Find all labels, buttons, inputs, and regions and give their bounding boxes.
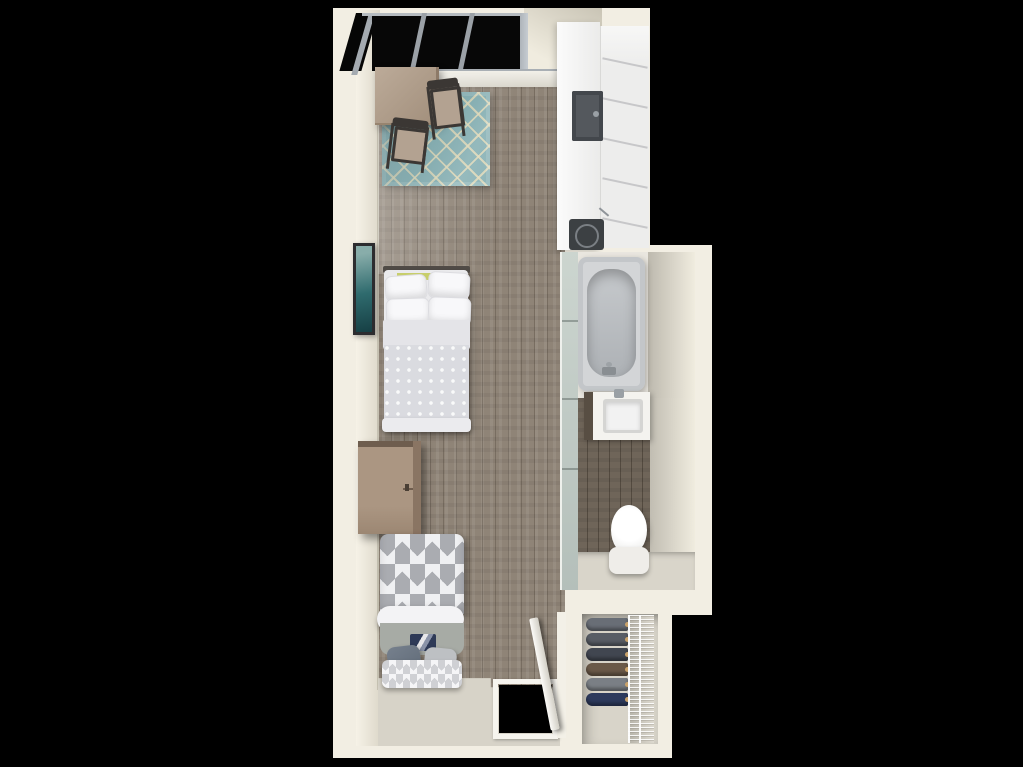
kitchen-faucet (593, 111, 599, 117)
wall-art (353, 243, 375, 335)
clothes-item (586, 678, 628, 691)
window-frame-right (520, 13, 528, 73)
cabinet-shelf-edge (602, 177, 647, 189)
floorplan-render (0, 0, 1023, 767)
clothes-item (586, 648, 628, 661)
bed-1 (383, 266, 470, 434)
vanity-cabinet-edge (584, 392, 593, 440)
clothes-item (586, 633, 628, 646)
baseboard (377, 74, 379, 690)
cooktop (569, 219, 604, 250)
bathtub (578, 257, 645, 391)
dresser-knob (405, 484, 409, 491)
bed-2 (380, 534, 464, 688)
polka-dot-duvet (384, 345, 469, 421)
dining-chair (384, 117, 432, 172)
glass-seam (562, 398, 578, 400)
glass-seam (562, 320, 578, 322)
vanity-sink (603, 399, 643, 433)
window-frame-top (362, 13, 528, 16)
glass-partition (560, 252, 578, 590)
foot-pillow-chevron (382, 660, 462, 688)
dresser (358, 441, 421, 534)
dresser-side (413, 441, 421, 534)
bathtub-faucet (602, 367, 616, 375)
chevron-duvet (380, 534, 464, 614)
clothes-item (586, 618, 628, 631)
clothes-item (586, 693, 628, 706)
bathroom-right-wall-face (648, 252, 695, 398)
glass-seam (562, 468, 578, 470)
vanity-faucet (614, 389, 624, 398)
cabinet-shelf-edge (602, 57, 647, 69)
bathtub-basin (587, 269, 636, 377)
window-glass (372, 13, 528, 71)
cabinet-shelf-edge (602, 217, 647, 229)
wire-shelving (628, 615, 654, 743)
dresser-edge (358, 441, 421, 447)
clothes-item (586, 663, 628, 676)
foot-fold (382, 418, 471, 432)
toilet-room-right-wall-face (650, 398, 695, 556)
kitchen-sink (572, 91, 603, 141)
cabinet-shelf-edge (602, 97, 647, 109)
cabinet-shelf-edge (602, 137, 647, 149)
hanging-clothes (586, 618, 628, 708)
door-jamb (557, 612, 566, 738)
toilet-base (609, 547, 649, 574)
